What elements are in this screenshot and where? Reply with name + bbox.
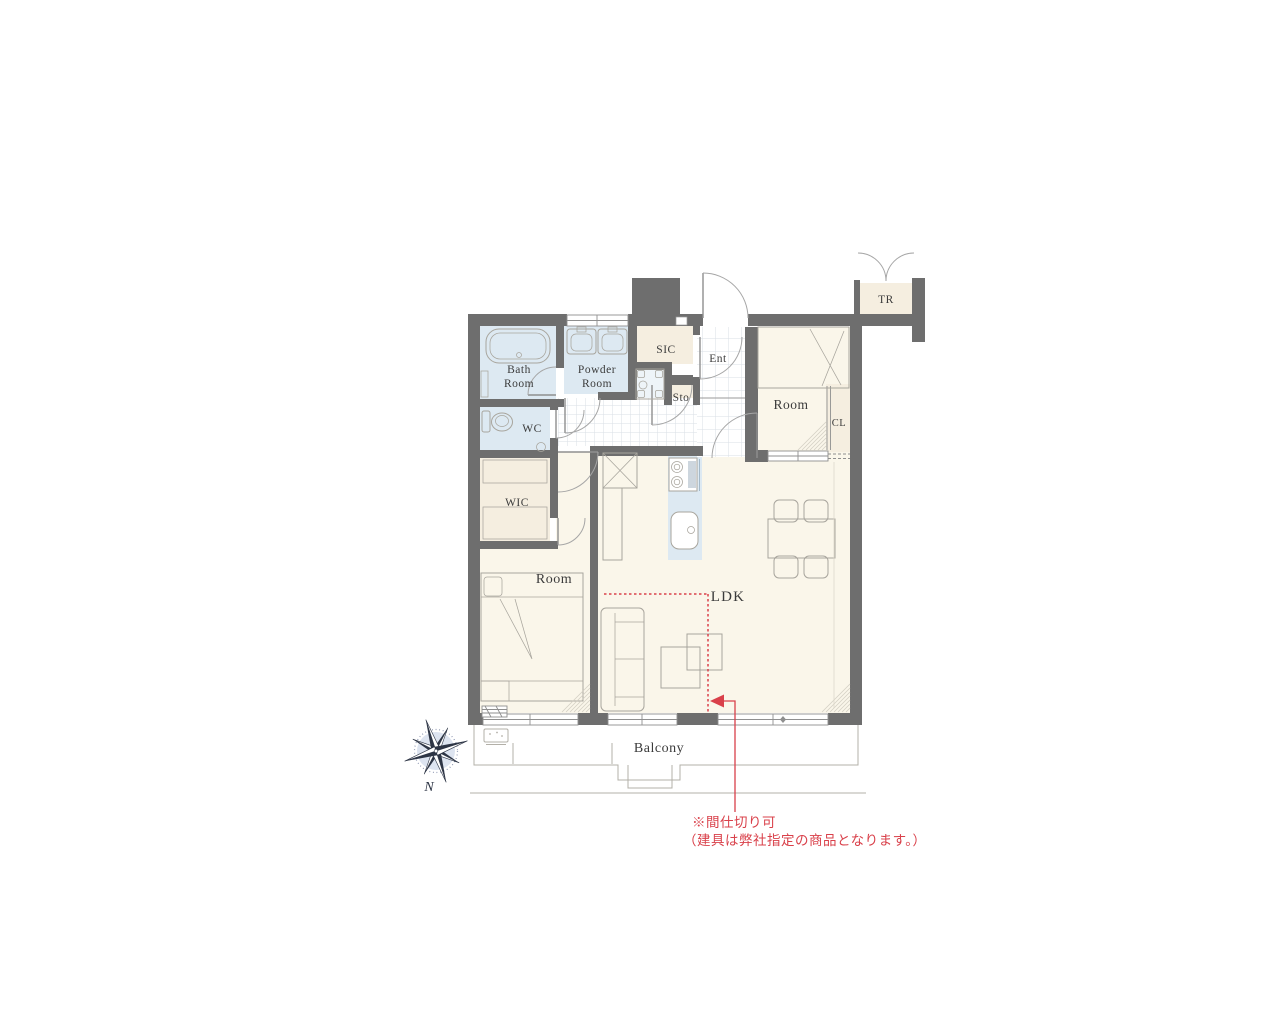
wall-bottom-4 [828, 713, 862, 725]
label-ent: Ent [709, 353, 727, 365]
louver-window [482, 706, 507, 717]
trunk-wall-left [854, 280, 860, 314]
wall-bath-powder [556, 326, 564, 368]
partition-note-line2: （建具は弊社指定の商品となります。） [683, 833, 927, 848]
meter-box [676, 317, 687, 325]
stove-icon [669, 458, 700, 491]
label-ldk: LDK [711, 589, 745, 605]
floor-fills [480, 283, 912, 713]
label-balcony: Balcony [634, 741, 684, 756]
compass-icon: N [394, 709, 477, 795]
floor-plan-page: N BathRoom PowderRoom WC WIC SIC Sto Ent… [0, 0, 1280, 1024]
label-powder-line1: Powder [578, 364, 616, 376]
window-bottom-ldk-1 [608, 714, 677, 725]
wall-bottom-3 [677, 713, 718, 725]
trunk-double-doors [858, 253, 914, 281]
laundry-nook-floor [636, 368, 664, 402]
wall-wic-room [550, 458, 558, 518]
label-sto: Sto [673, 392, 690, 404]
label-sic: SIC [656, 344, 675, 356]
wall-laundry-sto [664, 366, 672, 405]
wall-wc-wic [480, 450, 558, 458]
wall-bottom-2 [578, 713, 608, 725]
label-bath-line1: Bath [507, 364, 531, 376]
wall-hall-kitchen [596, 446, 703, 456]
ldk-floor [598, 450, 850, 713]
label-trunk-room: TR [878, 294, 894, 306]
label-bedroom-west: Room [536, 572, 572, 587]
trunk-wall-right [912, 278, 925, 342]
wall-wic-bottom [480, 541, 558, 549]
compass-north-label: N [423, 780, 434, 795]
wall-bottom-1 [468, 713, 483, 725]
wall-ent-bedroom-north [745, 327, 758, 452]
wall-left [468, 314, 480, 725]
entrance-door [703, 273, 748, 318]
label-bath-line2: Room [504, 378, 534, 390]
wall-sic-sto [664, 375, 693, 385]
wall-wc-hall-a [550, 399, 558, 410]
wall-top-3 [748, 314, 925, 326]
slop-sink-icon [484, 729, 508, 745]
pipe-shaft [632, 278, 680, 326]
wall-room-ldk [590, 446, 598, 713]
wall-top-1 [468, 314, 567, 326]
balcony-outline [470, 725, 866, 793]
label-bedroom-north: Room [773, 397, 808, 412]
label-wic: WIC [505, 497, 529, 509]
wall-sic-ent-b [693, 377, 700, 405]
grill [688, 461, 696, 488]
label-wc: WC [522, 423, 542, 435]
window-bedroom-north [768, 451, 828, 461]
wall-right [850, 326, 862, 725]
floor-plan-svg: N BathRoom PowderRoom WC WIC SIC Sto Ent… [0, 0, 1280, 1024]
kitchen-sink-icon [671, 512, 698, 549]
partition-note-line1: ※間仕切り可 [692, 815, 776, 830]
window-top [567, 315, 628, 326]
label-closet: CL [832, 418, 846, 429]
label-powder-line2: Room [582, 378, 612, 390]
wall-powder-hall [598, 392, 632, 400]
wall-sic-ent-a [693, 326, 700, 335]
